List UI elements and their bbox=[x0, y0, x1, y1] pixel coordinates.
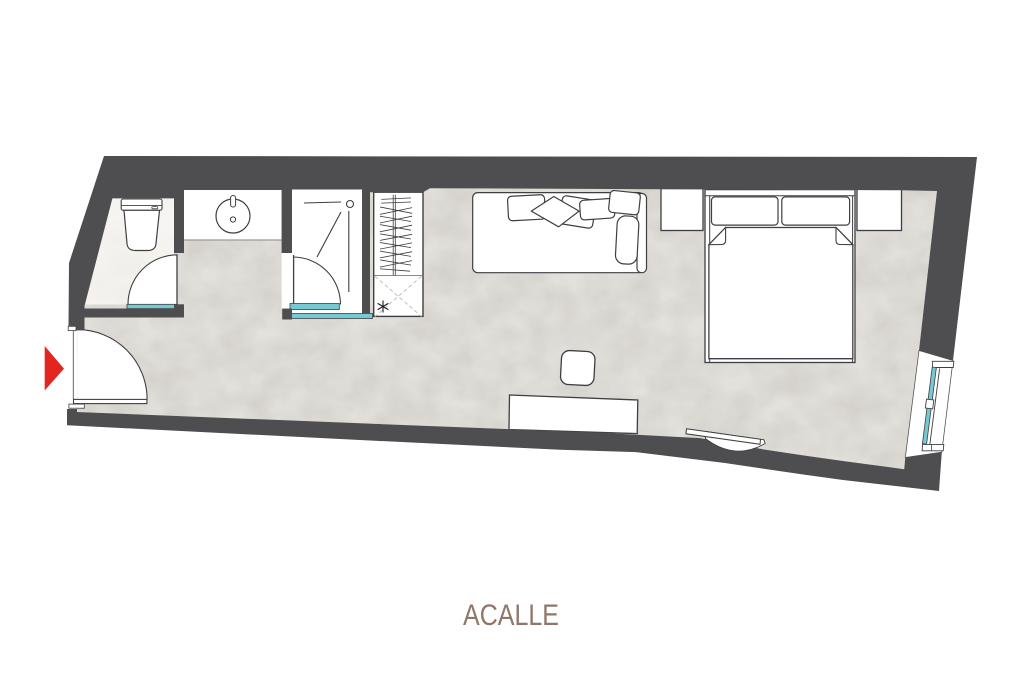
svg-text:ACALLE: ACALLE bbox=[463, 599, 559, 632]
